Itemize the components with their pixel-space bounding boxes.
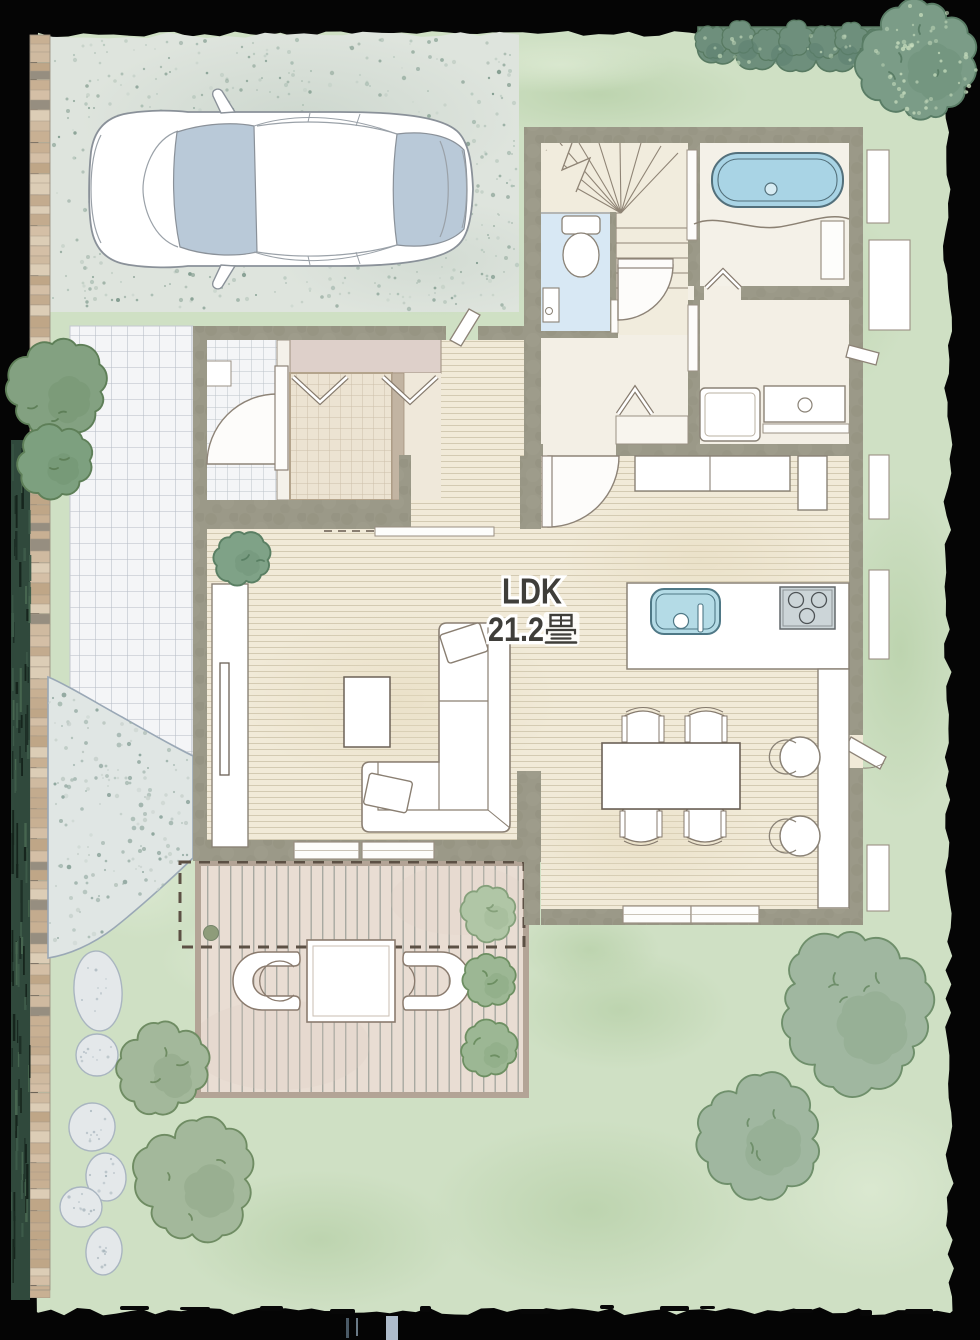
svg-text:LDK: LDK bbox=[502, 571, 562, 612]
svg-text:21.2: 21.2 bbox=[488, 611, 544, 649]
